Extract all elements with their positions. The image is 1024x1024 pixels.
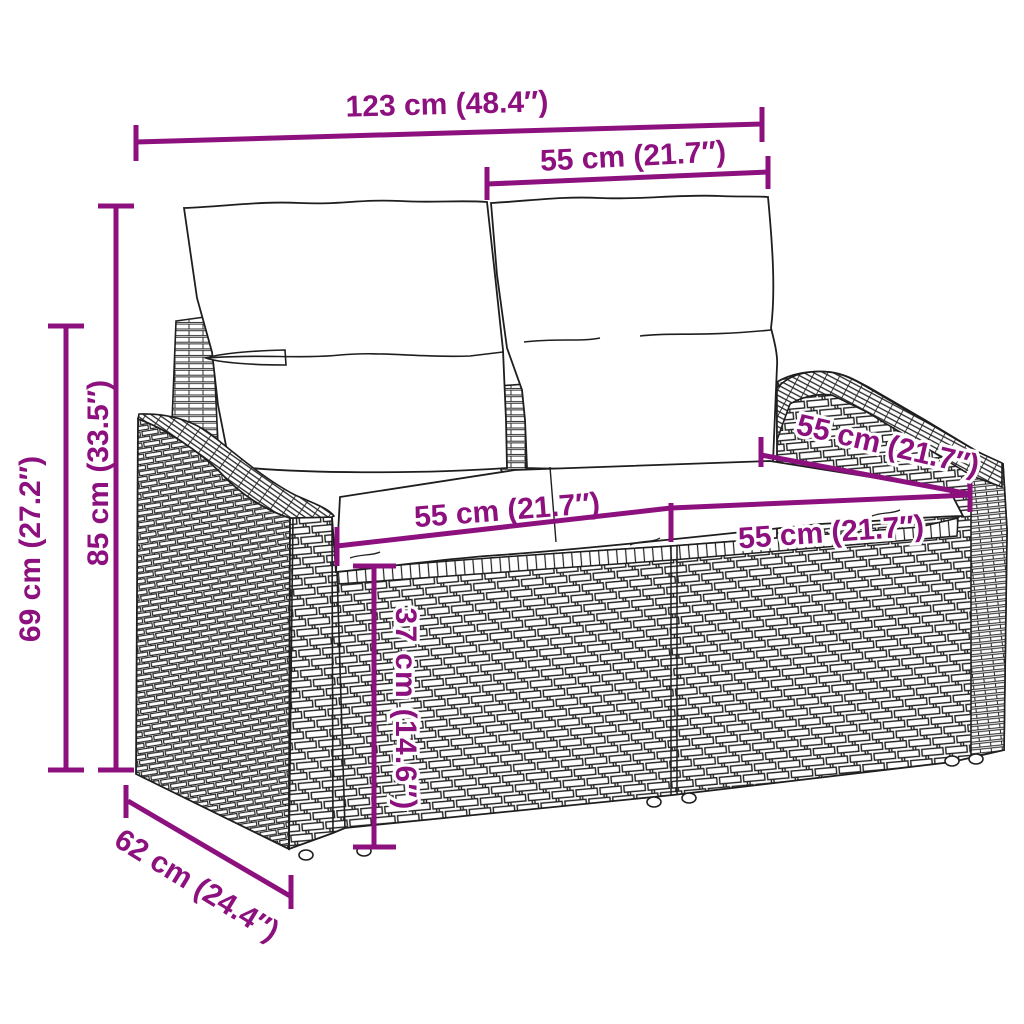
svg-text:37 cm (14.6″): 37 cm (14.6″): [389, 607, 422, 810]
svg-text:69 cm (27.2″): 69 cm (27.2″): [14, 456, 47, 642]
svg-text:85 cm (33.5″): 85 cm (33.5″): [82, 380, 115, 566]
svg-text:123 cm (48.4″): 123 cm (48.4″): [345, 85, 549, 123]
